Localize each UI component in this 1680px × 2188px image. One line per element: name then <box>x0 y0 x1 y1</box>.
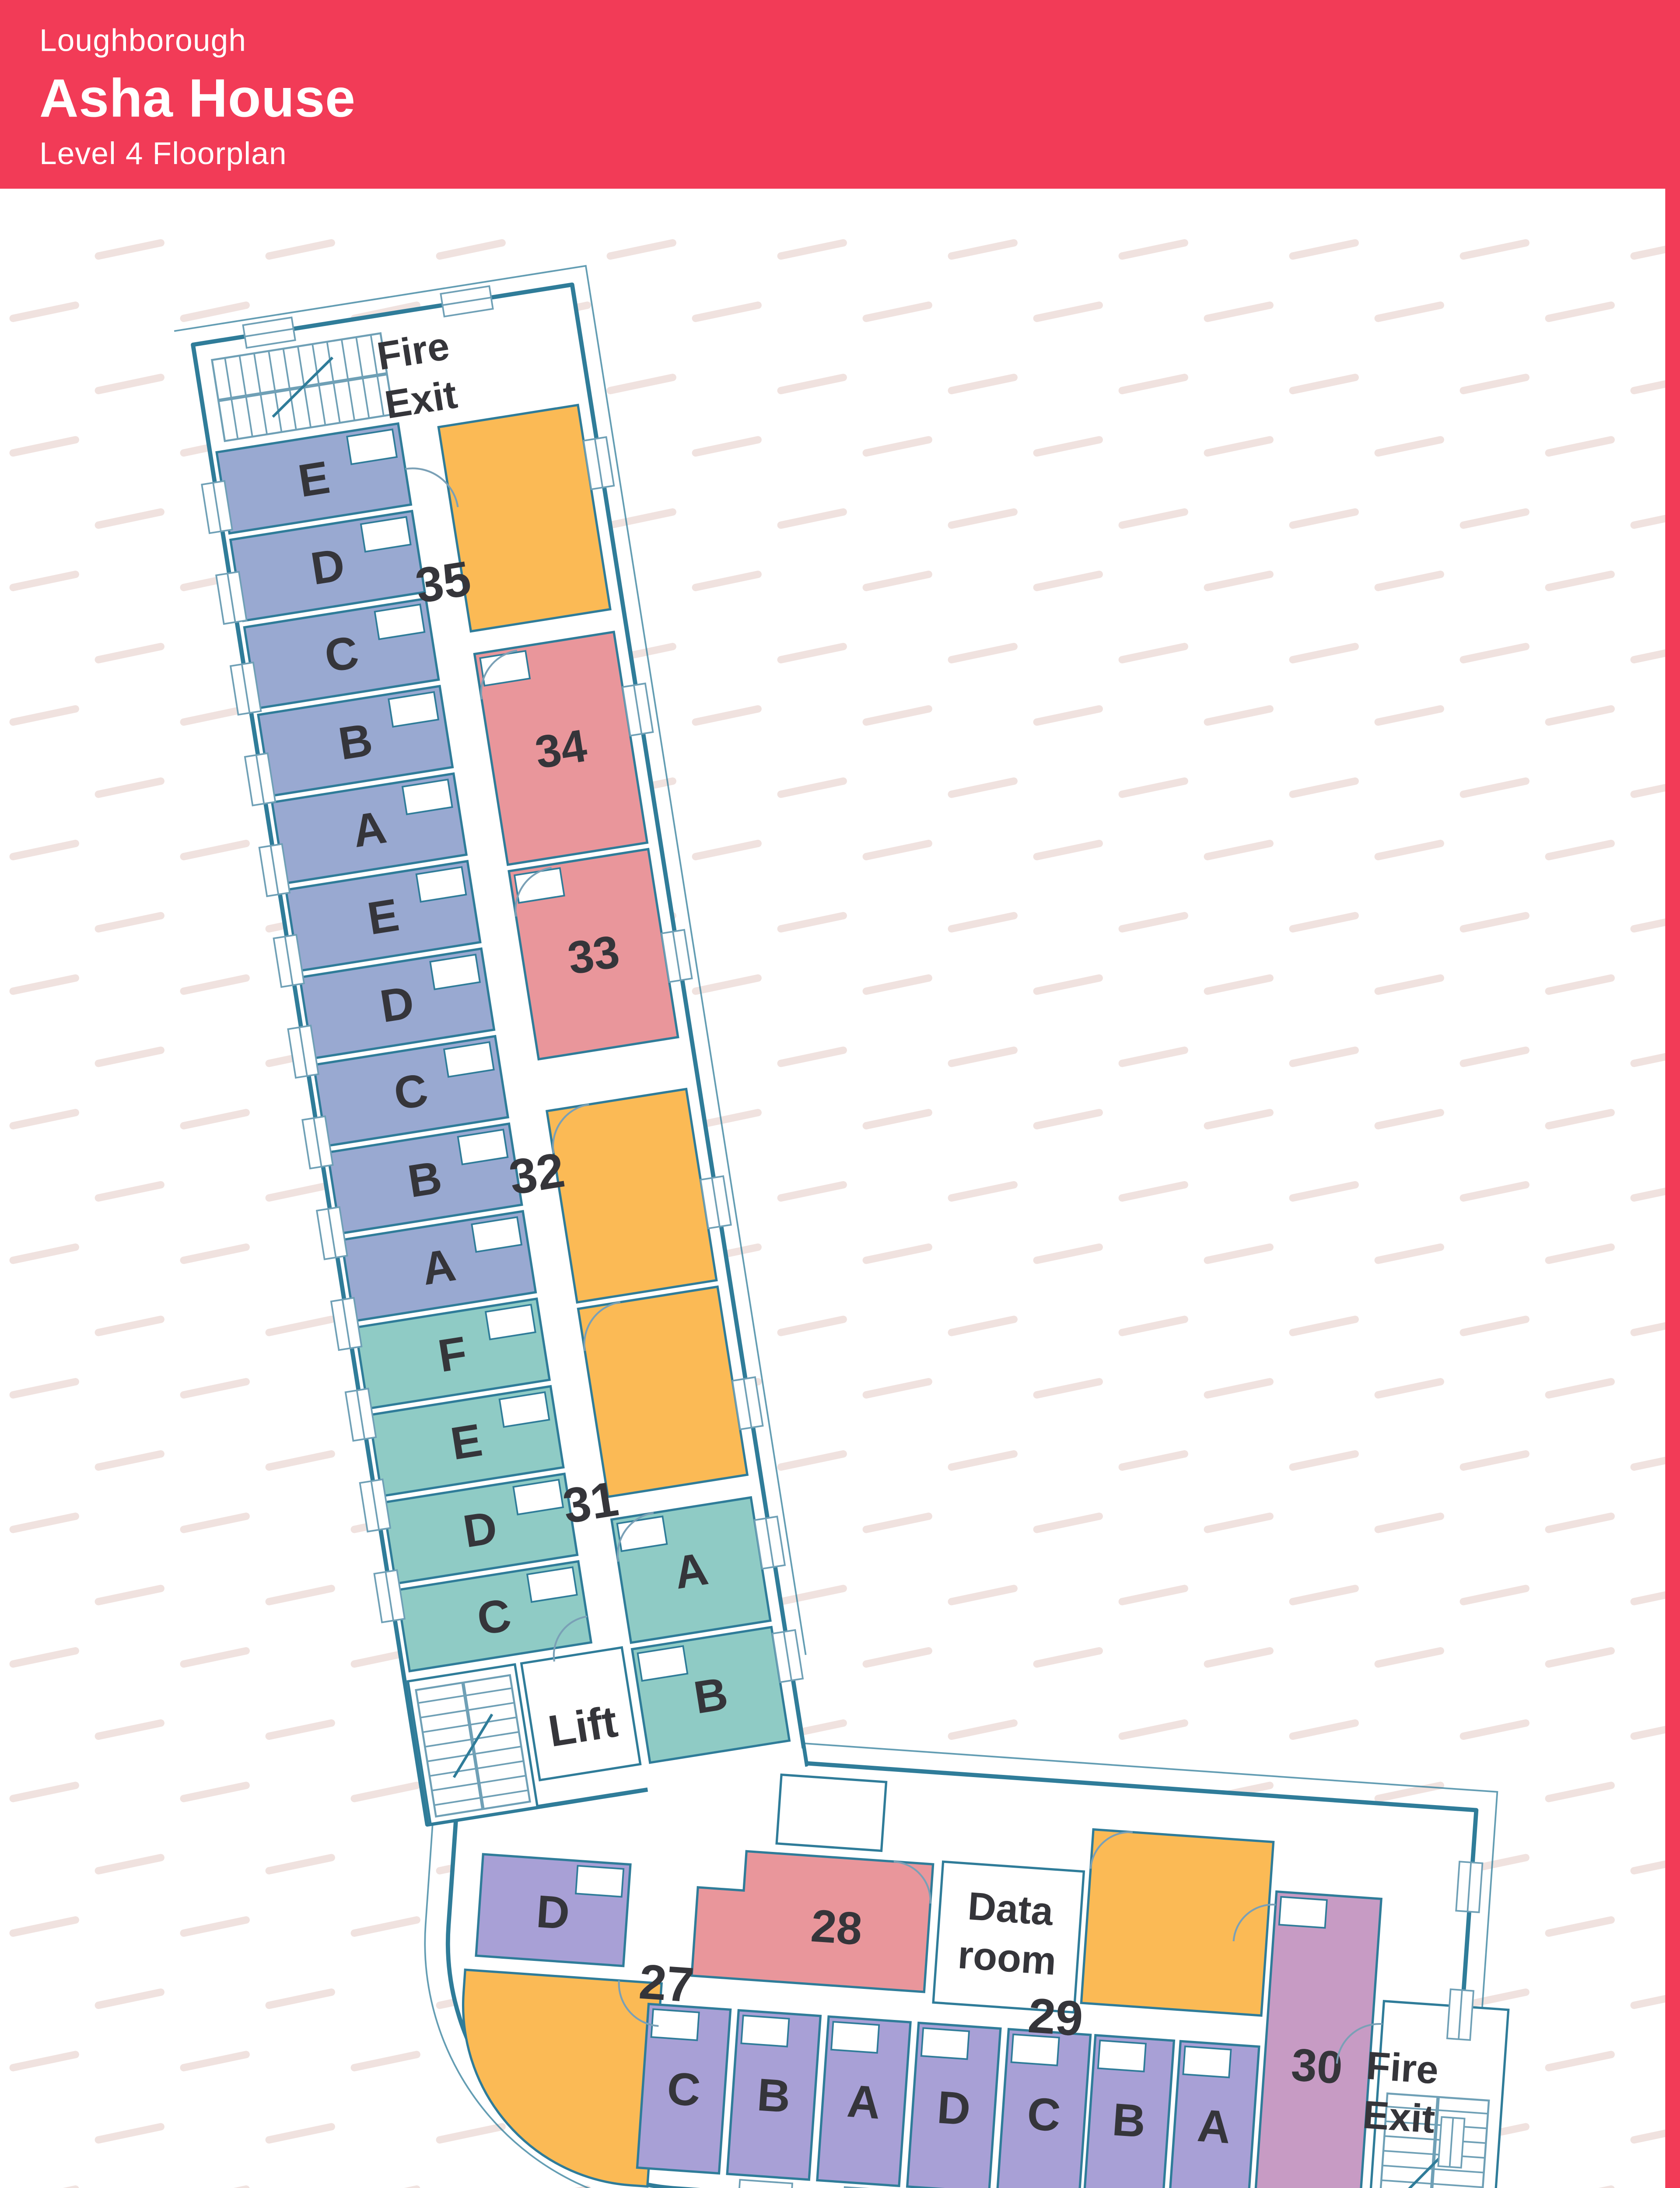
ensuite-pod <box>486 1304 535 1339</box>
unit-number-29: 29 <box>1026 1988 1085 2046</box>
ensuite-pod <box>1279 1897 1327 1928</box>
ensuite-pod <box>1183 2046 1231 2077</box>
ensuite-pod <box>388 692 438 726</box>
ensuite-pod <box>514 868 564 903</box>
room-label-hD: D <box>535 1886 571 1939</box>
room-label-s33: 33 <box>564 926 623 985</box>
ensuite-pod <box>576 1866 623 1897</box>
page-title: Asha House <box>39 65 1680 130</box>
page-header: Loughborough Asha House Level 4 Floorpla… <box>0 0 1680 189</box>
room-label-h27B: B <box>756 2069 792 2122</box>
room-label-h29D: D <box>935 2082 972 2135</box>
room-label-r30: 30 <box>1290 2039 1344 2094</box>
room-label-h27C: C <box>665 2063 702 2116</box>
ensuite-pod <box>921 2028 969 2059</box>
header-city: Loughborough <box>39 23 1680 62</box>
room-label-s34: 34 <box>532 720 590 778</box>
room-r30 <box>1255 1892 1381 2188</box>
header-subtitle: Level 4 Floorplan <box>39 137 1680 176</box>
floorplan-svg: EDCBAEDCBAFEDC3433AB353231FireExitLiftD2… <box>0 0 1680 2188</box>
room-k29 <box>1081 1830 1273 2016</box>
unit-number-27: 27 <box>637 1954 696 2013</box>
ensuite-pod <box>513 1480 563 1514</box>
plan-text-data-room: Data <box>966 1884 1055 1934</box>
ensuite-pod <box>458 1129 508 1164</box>
ensuite-pod <box>416 867 466 901</box>
room-label-s28: 28 <box>809 1900 864 1955</box>
ensuite-pod <box>638 1646 688 1681</box>
page: EDCBAEDCBAFEDC3433AB353231FireExitLiftD2… <box>0 0 1680 2188</box>
ensuite-pod <box>500 1392 549 1427</box>
ensuite-pod <box>361 517 411 551</box>
room-label-h29B: B <box>1111 2094 1148 2147</box>
plan-text-fire-exit-bottom: Exit <box>1361 2093 1437 2142</box>
ensuite-pod <box>480 651 530 685</box>
plan-text-data-room: room <box>956 1933 1057 1983</box>
vestibule <box>777 1775 886 1851</box>
room-k32 <box>547 1089 717 1303</box>
ensuite-pod <box>444 1042 494 1076</box>
plan-text-fire-exit-bottom: Fire <box>1365 2044 1440 2093</box>
room-k31 <box>578 1287 748 1497</box>
unit-number-32: 32 <box>505 1142 568 1205</box>
unit-number-31: 31 <box>559 1471 622 1534</box>
page-edge-right <box>1665 0 1680 2188</box>
room-label-h27A: A <box>845 2076 882 2129</box>
ensuite-pod <box>430 954 480 989</box>
ensuite-pod <box>1098 2041 1146 2072</box>
ensuite-pod <box>347 429 397 464</box>
ensuite-pod <box>527 1567 577 1602</box>
ensuite-pod <box>617 1516 667 1551</box>
ensuite-pod <box>402 779 452 814</box>
room-label-h29C: C <box>1025 2088 1062 2142</box>
stairs-mid-icon <box>416 1675 530 1816</box>
room-label-h29A: A <box>1196 2100 1232 2153</box>
ensuite-pod <box>831 2022 879 2053</box>
ensuite-pod <box>651 2009 699 2040</box>
ensuite-pod <box>375 604 425 639</box>
unit-number-35: 35 <box>412 551 474 614</box>
ensuite-pod <box>472 1217 521 1252</box>
ensuite-pod <box>741 2016 789 2047</box>
